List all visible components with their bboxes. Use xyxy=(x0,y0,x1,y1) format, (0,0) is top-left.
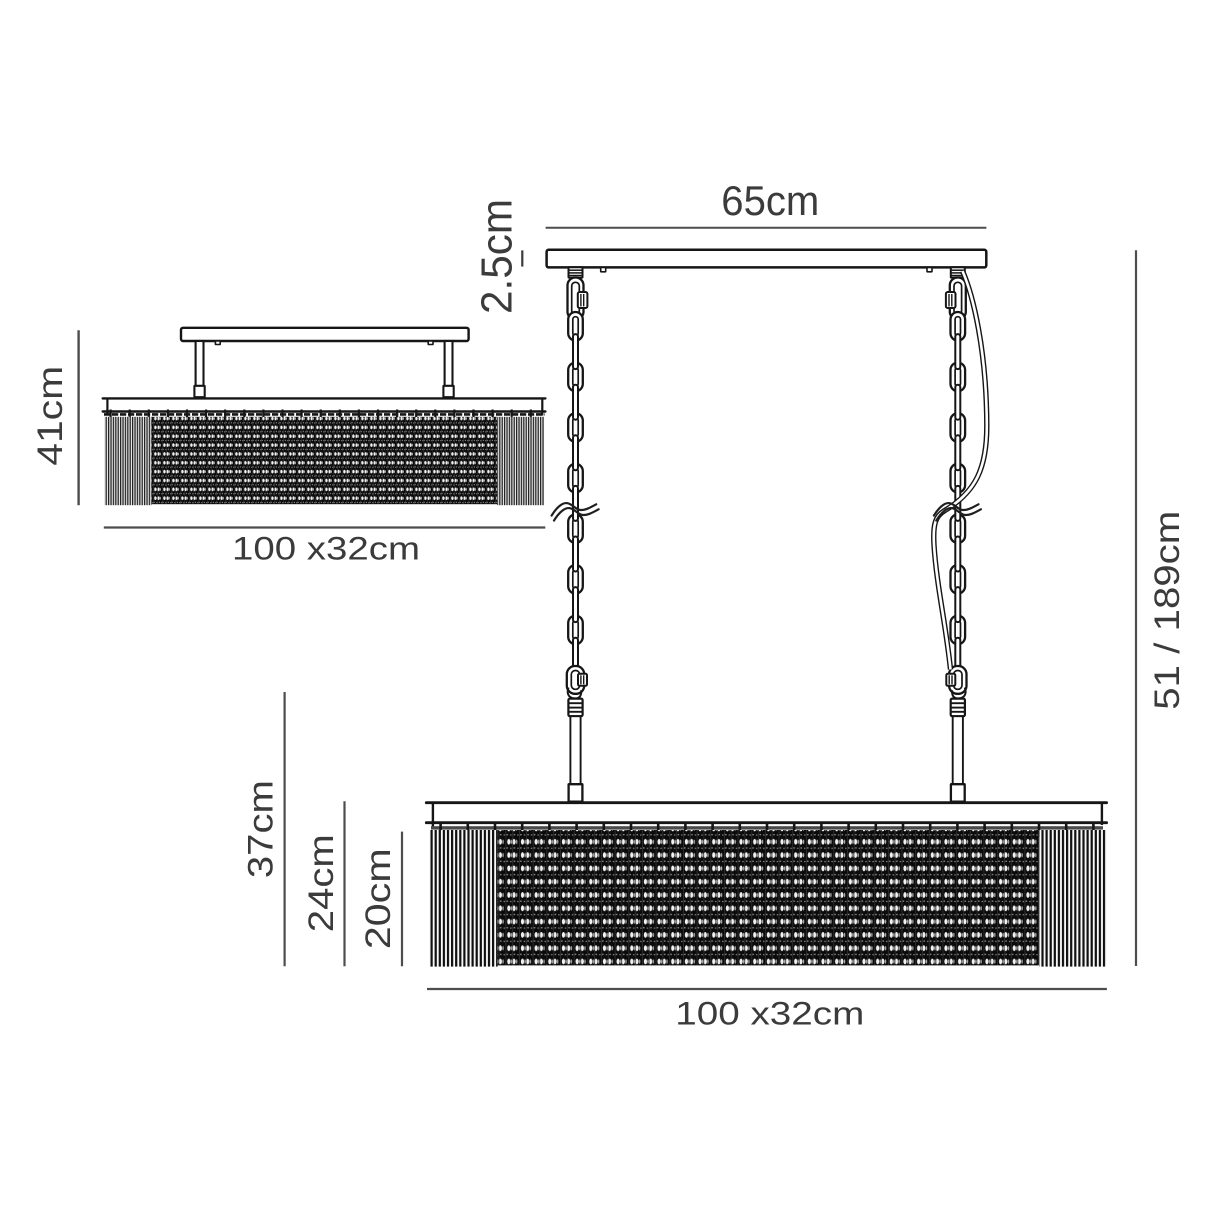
svg-text:100 x32cm: 100 x32cm xyxy=(232,531,420,567)
svg-text:100 x32cm: 100 x32cm xyxy=(675,996,864,1032)
svg-text:41cm: 41cm xyxy=(31,366,70,466)
svg-text:37cm: 37cm xyxy=(242,780,281,878)
svg-text:20cm: 20cm xyxy=(359,848,398,949)
svg-text:65cm: 65cm xyxy=(721,177,819,224)
svg-text:51 / 189cm: 51 / 189cm xyxy=(1148,511,1187,710)
svg-text:2.5cm: 2.5cm xyxy=(473,199,522,314)
svg-text:24cm: 24cm xyxy=(302,834,341,932)
